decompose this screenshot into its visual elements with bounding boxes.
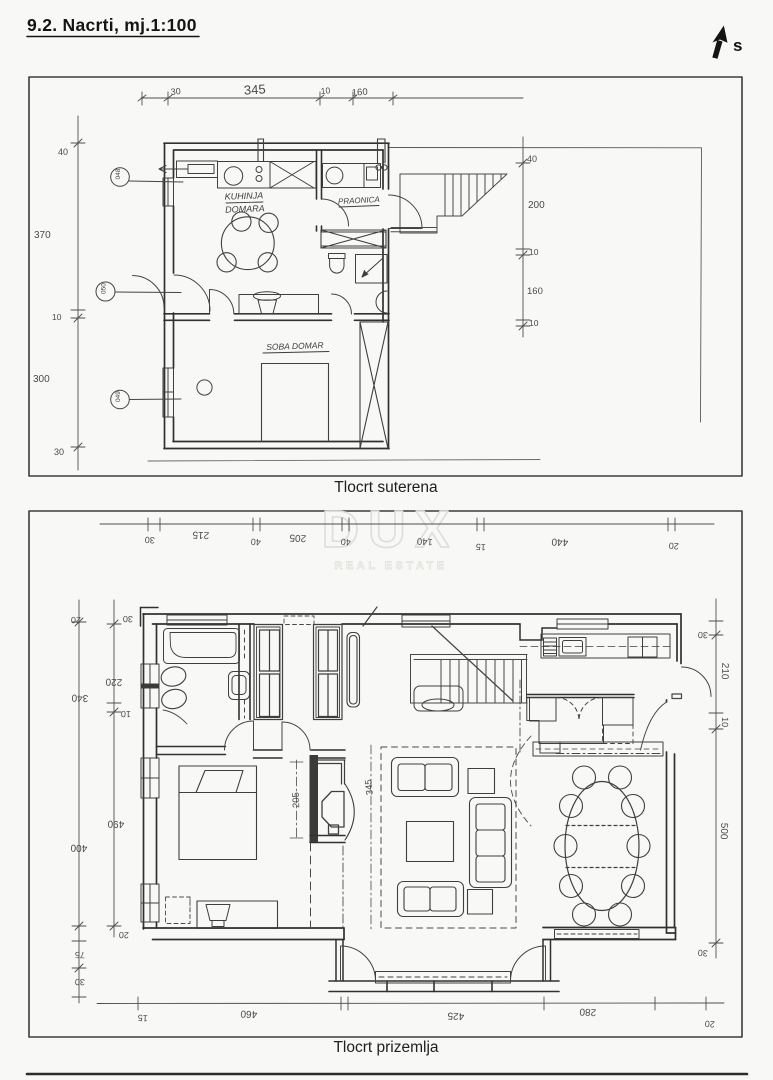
svg-text:9.2. Nacrti, mj.1:100: 9.2. Nacrti, mj.1:100 <box>27 15 197 35</box>
svg-text:160: 160 <box>527 286 543 297</box>
svg-text:050: 050 <box>101 283 108 294</box>
svg-text:10: 10 <box>121 709 131 719</box>
svg-text:425: 425 <box>447 1010 465 1022</box>
svg-text:40: 40 <box>58 147 68 157</box>
svg-text:220: 220 <box>105 676 122 688</box>
svg-text:30: 30 <box>75 977 85 987</box>
svg-text:200: 200 <box>528 200 545 211</box>
svg-text:205: 205 <box>291 792 303 808</box>
svg-text:370: 370 <box>34 230 51 241</box>
svg-text:160: 160 <box>351 87 368 99</box>
svg-text:75: 75 <box>75 950 85 960</box>
svg-text:15: 15 <box>475 542 486 553</box>
svg-text:30: 30 <box>697 948 708 959</box>
svg-text:15: 15 <box>137 1013 148 1024</box>
svg-text:400: 400 <box>70 842 87 854</box>
svg-text:30: 30 <box>144 535 155 546</box>
svg-text:10: 10 <box>52 312 62 322</box>
svg-text:REAL ESTATE: REAL ESTATE <box>334 560 447 572</box>
svg-text:30: 30 <box>54 447 64 457</box>
svg-text:210: 210 <box>719 663 731 680</box>
svg-text:40: 40 <box>527 154 537 164</box>
svg-text:340: 340 <box>71 692 88 704</box>
svg-text:SOBA DOMAR: SOBA DOMAR <box>266 340 324 352</box>
svg-text:30: 30 <box>698 630 708 640</box>
svg-text:20: 20 <box>668 541 679 552</box>
svg-text:40: 40 <box>250 537 261 548</box>
svg-text:40: 40 <box>340 537 351 548</box>
svg-text:20: 20 <box>119 930 129 940</box>
svg-text:KUHINJA: KUHINJA <box>224 190 263 201</box>
svg-text:215: 215 <box>192 529 210 541</box>
svg-text:Tlocrt suterena: Tlocrt suterena <box>334 479 438 496</box>
svg-text:10: 10 <box>529 318 539 328</box>
svg-text:048: 048 <box>115 168 122 179</box>
svg-text:440: 440 <box>551 536 569 548</box>
svg-text:345: 345 <box>244 81 266 97</box>
svg-text:Tlocrt prizemlja: Tlocrt prizemlja <box>333 1039 438 1056</box>
svg-text:490: 490 <box>107 818 124 830</box>
svg-text:30: 30 <box>170 86 181 97</box>
svg-text:300: 300 <box>33 374 50 385</box>
svg-text:049: 049 <box>115 391 122 402</box>
svg-text:10: 10 <box>720 717 730 727</box>
svg-text:20: 20 <box>704 1019 715 1030</box>
svg-text:s: s <box>733 36 742 55</box>
svg-text:10: 10 <box>320 85 331 96</box>
svg-text:500: 500 <box>718 823 730 840</box>
svg-text:30: 30 <box>123 614 133 624</box>
svg-text:280: 280 <box>579 1006 597 1018</box>
svg-text:460: 460 <box>240 1008 258 1020</box>
svg-text:205: 205 <box>289 532 307 544</box>
svg-text:DOMARA: DOMARA <box>225 203 265 214</box>
svg-text:10: 10 <box>529 247 539 257</box>
svg-text:20: 20 <box>71 615 81 625</box>
svg-text:345: 345 <box>363 779 375 796</box>
svg-text:140: 140 <box>417 535 433 547</box>
